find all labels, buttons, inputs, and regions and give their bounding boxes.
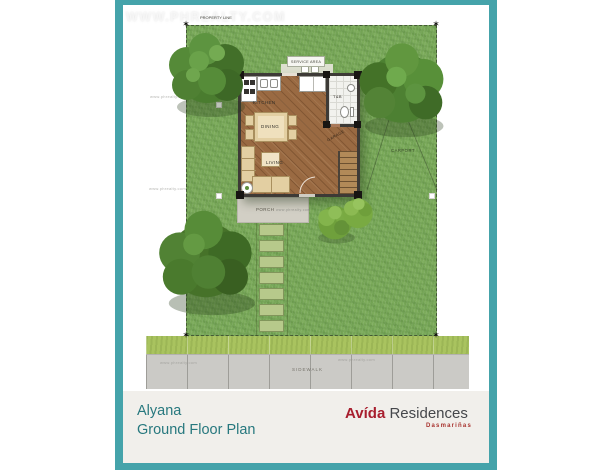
dining-label: DINING	[261, 124, 279, 129]
brand-residences-text: Residences	[389, 405, 467, 422]
watermark-small: www.phrealty.com	[338, 357, 375, 362]
dining-chair	[288, 115, 297, 126]
dining-chair	[245, 129, 254, 140]
carport-label: CARPORT	[382, 148, 424, 153]
tb-door-opening	[331, 124, 340, 127]
lot-corner-marker-icon: ✶	[431, 19, 441, 29]
tree	[146, 196, 266, 324]
brand-location: Dasmariñas	[360, 423, 472, 429]
door-swing-arc	[299, 176, 316, 194]
footer-title: Alyana Ground Floor Plan	[137, 402, 255, 440]
floor-plan-page: WWW.PHREALTY.COM PROPERTY LINE ✶ ✶ ✶ ✶ w…	[0, 0, 610, 470]
staircase	[338, 151, 357, 194]
living-label: LIVING	[266, 160, 283, 165]
brand-avida: Avída	[345, 405, 385, 422]
garage-label: GARAGE	[326, 128, 345, 142]
dining-chair	[288, 129, 297, 140]
tree	[346, 32, 458, 144]
avida-residences-logo: Avída Residences	[345, 405, 468, 422]
dining-table: DINING	[254, 112, 288, 142]
sofa-cushion-line	[242, 158, 256, 159]
watermark-small: www.phrealty.com	[276, 208, 311, 212]
bush	[336, 190, 380, 234]
tb-wall-left	[326, 73, 329, 127]
sofa-bottom	[252, 176, 290, 193]
kitchen-sink-counter	[257, 76, 281, 91]
plan-title: Ground Floor Plan	[137, 421, 255, 440]
service-door-opening	[282, 73, 297, 76]
wall-post	[323, 71, 330, 78]
sink-basin-icon	[260, 79, 268, 88]
sofa-cushion-line	[271, 177, 272, 194]
lot-corner-marker-icon: ✶	[181, 330, 191, 340]
watermark-small: www.phrealty.com	[149, 186, 186, 191]
service-area-label: SERVICE AREA	[287, 56, 325, 67]
laundry-fixture	[301, 66, 309, 73]
property-line-label: PROPERTY LINE	[200, 15, 232, 20]
sink-basin-icon	[270, 79, 278, 88]
sidewalk-label: SIDEWALK	[146, 367, 469, 372]
plant-icon	[245, 186, 249, 190]
project-name: Alyana	[137, 402, 255, 421]
tree	[157, 22, 257, 124]
toilet-bath-label: T&B	[333, 94, 342, 99]
laundry-fixture	[311, 66, 319, 73]
refrigerator-counter	[299, 76, 326, 92]
counter-divider	[313, 77, 314, 91]
sofa-cushion-line	[242, 170, 256, 171]
watermark-small: www.phrealty.com	[160, 360, 197, 365]
wall-post	[323, 121, 330, 128]
lot-corner-marker-icon: ✶	[431, 330, 441, 340]
grass-easement-strip	[146, 336, 469, 354]
